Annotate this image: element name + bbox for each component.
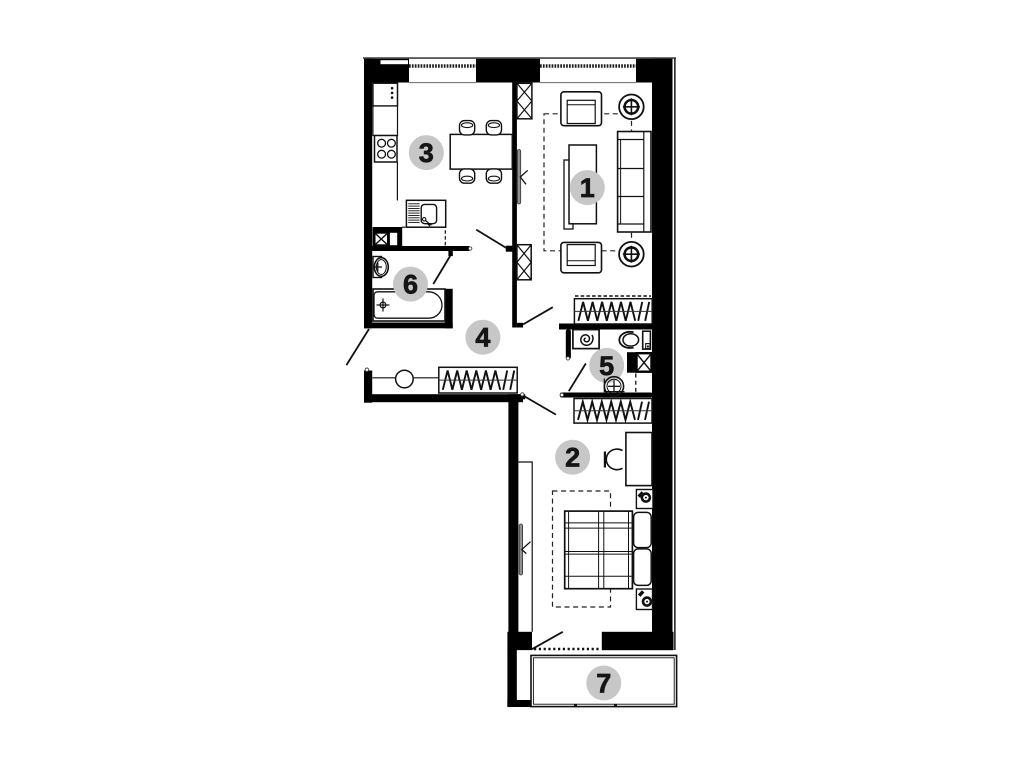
svg-text:2: 2 [565,443,580,473]
svg-text:3: 3 [419,138,434,168]
svg-text:1: 1 [580,173,595,203]
svg-text:6: 6 [403,270,418,300]
svg-text:4: 4 [475,323,490,353]
svg-text:7: 7 [596,669,611,699]
